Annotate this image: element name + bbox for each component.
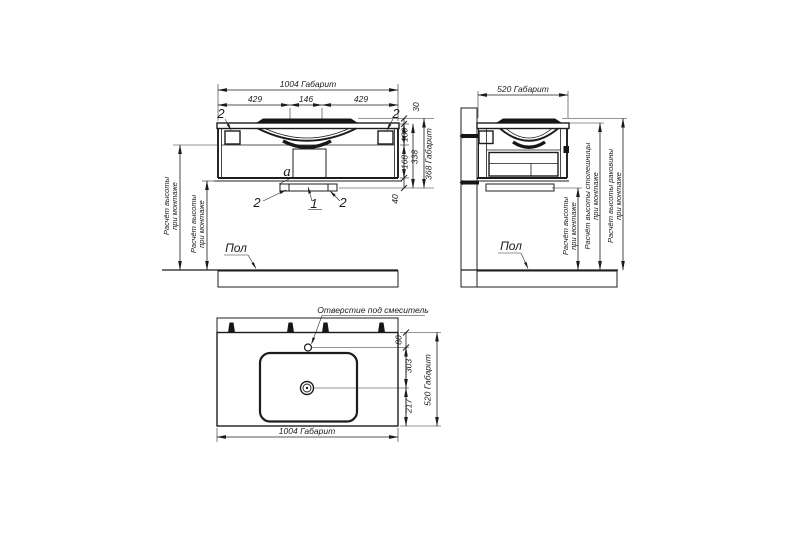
mount-mark: [378, 323, 385, 333]
side-mount-height-text-2: при монтаже: [569, 202, 578, 250]
siphon-zone: [293, 149, 326, 178]
wall-bracket-left: [225, 131, 240, 144]
callout-bracket-top-left: 2: [216, 106, 225, 121]
wall-bracket-side: [479, 131, 493, 144]
plan-dim-drain-offset: 303: [404, 359, 414, 373]
plan-dim-drain-to-front: 217: [404, 399, 414, 414]
front-dim-w-right: 429: [354, 94, 368, 104]
floor-hatch: [477, 271, 617, 287]
front-mount-height-text-2: при монтаже: [197, 200, 206, 248]
mount-screw-top: [463, 134, 479, 138]
sink-bowl-bottom: [513, 142, 545, 147]
drawer-handle: [564, 146, 570, 153]
front-dim-w-left: 429: [248, 94, 262, 104]
mount-mark: [228, 323, 235, 333]
bottom-clip-right: [328, 184, 337, 191]
sink-bowl-outer: [258, 129, 356, 141]
side-floor-label: Пол: [500, 239, 522, 253]
technical-drawing: 1004 Габарит 429 146 429 2 2 a: [0, 0, 800, 536]
plan-dim-mixer-offset: 80: [394, 335, 404, 345]
front-mount-height-text-2: при монтаже: [170, 182, 179, 230]
front-dim-h-basin: 130: [400, 128, 410, 142]
wall-hatch: [217, 318, 398, 333]
drawing-canvas: 1004 Габарит 429 146 429 2 2 a: [0, 0, 800, 536]
side-countertop-height-text-2: при монтаже: [591, 172, 600, 220]
callout-clip-left: 2: [252, 195, 261, 210]
side-dim-depth-total: 520 Габарит: [497, 84, 549, 94]
countertop-side: [477, 123, 569, 129]
callout-clip-right: 2: [338, 195, 347, 210]
front-dim-w-center: 146: [299, 94, 313, 104]
sink-rim-front: [256, 119, 358, 124]
sink-bowl-bottom: [283, 141, 331, 147]
front-dim-h-body: 168: [400, 155, 410, 169]
side-view: 520 Габарит Расчёт высоты при монтаже Ра…: [460, 84, 628, 287]
front-dim-h-under-top: 338: [410, 150, 420, 164]
bottom-clip-left: [280, 184, 289, 191]
front-floor-label: Пол: [225, 241, 247, 255]
sink-rim-side: [496, 119, 562, 124]
leader-line: [312, 316, 323, 345]
front-dim-h-total: 368 Габарит: [424, 128, 434, 180]
plan-view: Отверстие под смеситель 80 303 217 520 Г…: [217, 305, 441, 442]
leader-line: [521, 253, 528, 269]
countertop-front: [217, 123, 399, 129]
leader-line: [248, 255, 256, 269]
floor-hatch: [218, 271, 398, 287]
drain-center: [306, 387, 308, 389]
mixer-callout-text: Отверстие под смеситель: [317, 305, 428, 315]
plan-dim-depth-total: 520 Габарит: [423, 354, 433, 406]
mount-mark: [287, 323, 294, 333]
front-dim-width-total: 1004 Габарит: [280, 79, 336, 89]
leader-line: [263, 190, 286, 201]
mount-mark: [322, 323, 329, 333]
front-dim-h-rim: 30: [411, 102, 421, 112]
sink-outline-plan: [260, 353, 357, 422]
wall-bracket-right: [378, 131, 393, 144]
mixer-hole: [305, 344, 312, 351]
drawer-box: [489, 153, 558, 177]
front-dim-h-plinth: 40: [390, 194, 400, 204]
plan-dim-width-total: 1004 Габарит: [279, 426, 335, 436]
front-view: 1004 Габарит 429 146 429 2 2 a: [162, 79, 434, 287]
bottom-mount-strip: [486, 184, 554, 191]
side-sink-height-text-2: при монтаже: [614, 172, 623, 220]
